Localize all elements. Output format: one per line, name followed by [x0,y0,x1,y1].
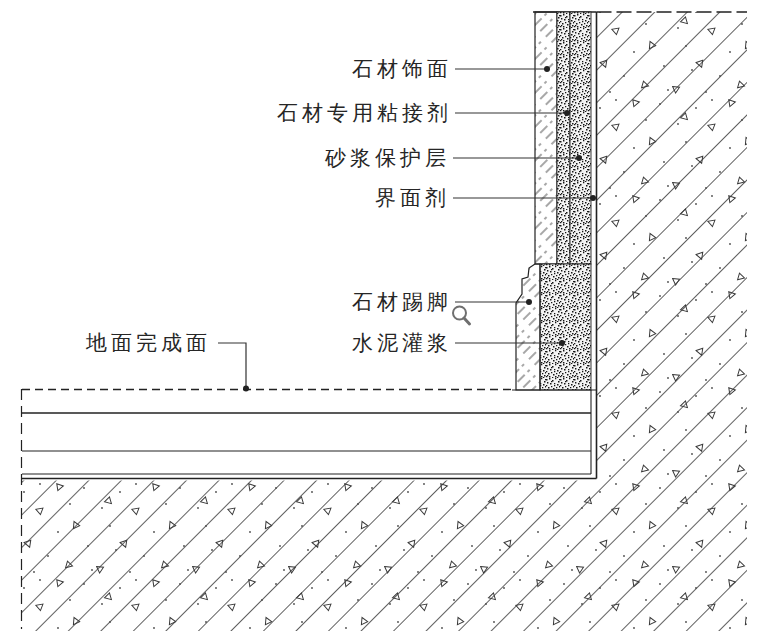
label-interface-agent: 界面剂 [375,185,450,211]
label-stone-skirting: 石材踢脚 [352,289,452,315]
detail-drawing-canvas: 石材饰面 石材专用粘接剂 砂浆保护层 界面剂 石材踢脚 水泥灌浆 地面完成面 [0,0,760,642]
label-mortar-protection: 砂浆保护层 [325,145,450,171]
magnifier-icon [453,307,470,325]
cement-grout-fill [540,264,591,390]
mortar-protection-layer [570,12,591,264]
drawing-linework [0,0,760,642]
label-stone-adhesive: 石材专用粘接剂 [277,100,452,126]
interface-agent-line [591,12,597,479]
label-floor-finish: 地面完成面 [86,330,211,356]
wall-stone-facing-layer [535,12,557,264]
skirting-profile [516,264,540,390]
stone-adhesive-layer [557,12,570,264]
label-cement-grout: 水泥灌浆 [352,330,452,356]
label-stone-facing: 石材饰面 [352,56,452,82]
